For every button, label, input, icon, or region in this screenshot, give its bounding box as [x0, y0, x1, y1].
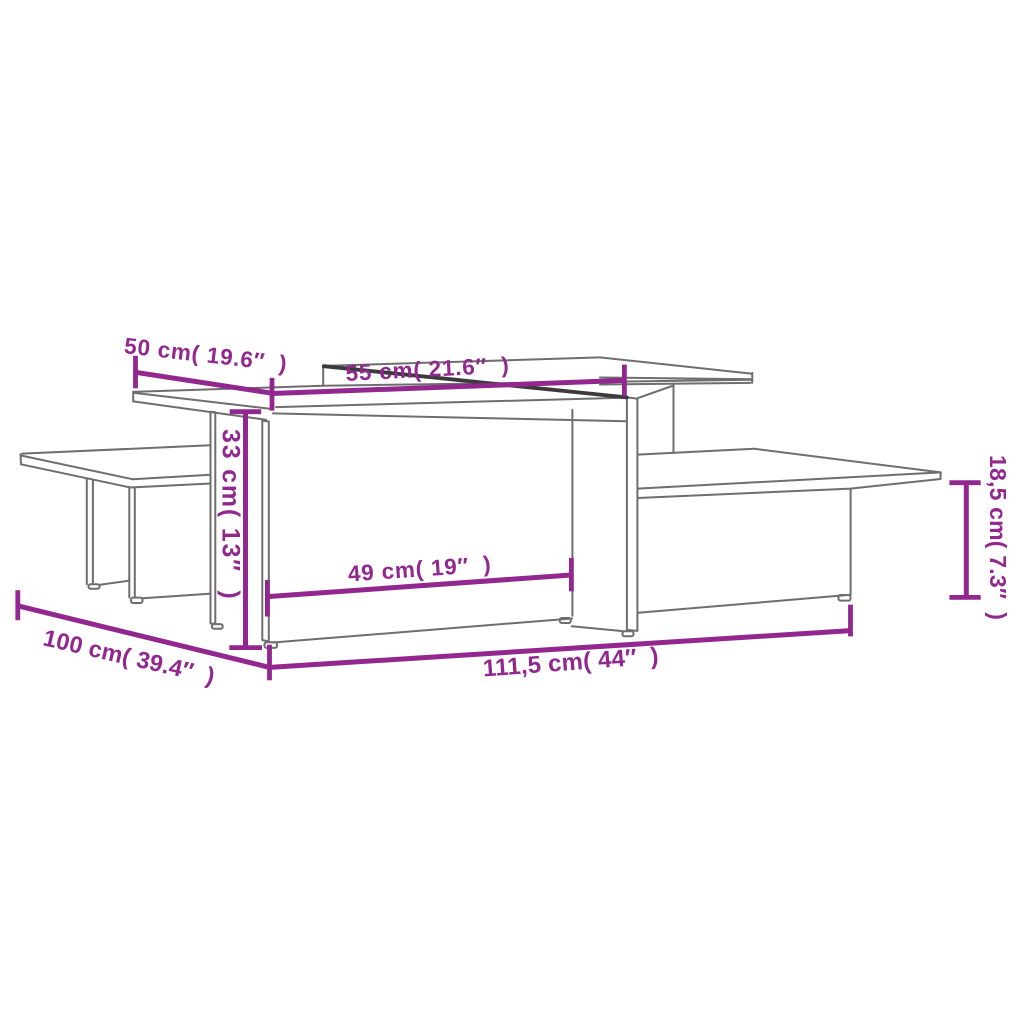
svg-text:33 cm( 13″ ): 33 cm( 13″ ) [217, 429, 245, 601]
svg-text:18,5 cm( 7.3″ ): 18,5 cm( 7.3″ ) [985, 455, 1011, 620]
